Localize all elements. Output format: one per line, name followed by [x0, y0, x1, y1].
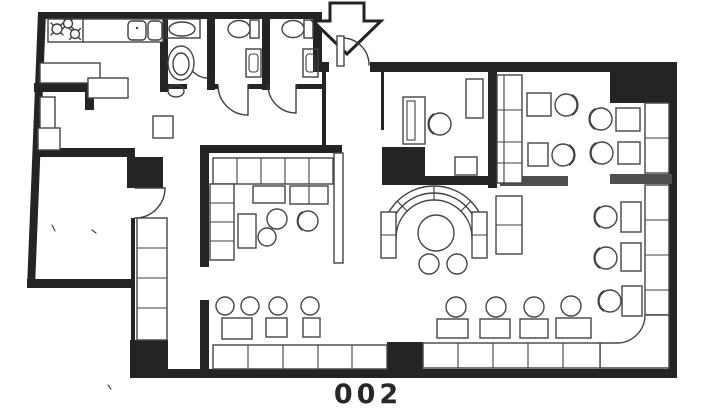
lounge-partition-right — [610, 174, 672, 184]
pillar-southwest — [130, 340, 168, 378]
table-icon — [253, 186, 285, 203]
table-icon — [622, 286, 642, 316]
corner-bench-seat-icon — [600, 315, 669, 368]
chair-icon — [216, 297, 234, 315]
office-cabinet — [466, 79, 483, 118]
table-icon — [520, 319, 548, 338]
top-wall-right — [370, 62, 677, 72]
bottom-bench-left-seat-icon — [213, 345, 387, 369]
table-icon — [266, 318, 287, 337]
table-icon — [527, 93, 551, 116]
office-left-wall — [381, 72, 384, 130]
chair-icon — [590, 142, 613, 164]
chair-icon — [486, 297, 506, 317]
table-icon — [621, 243, 641, 271]
chair-icon — [524, 297, 544, 317]
chair-icon — [269, 297, 287, 315]
entrance-step-wall — [322, 62, 329, 72]
table-icon — [556, 318, 591, 338]
wc-front-wall-2 — [207, 84, 218, 89]
table-icon — [238, 214, 256, 248]
round-table-icon — [418, 215, 454, 251]
wc2-door-swing-icon — [218, 85, 248, 115]
water-heater — [153, 116, 173, 138]
table-icon — [618, 142, 640, 164]
service-shelf — [496, 196, 522, 254]
chair-icon — [241, 297, 259, 315]
wc3-fixtures — [282, 20, 318, 77]
entrance-arrow-icon — [313, 3, 381, 54]
wc3-door-swing-icon — [268, 85, 296, 113]
low-partition — [334, 153, 343, 263]
right-bench-seat-icon — [645, 185, 669, 315]
washbasin-icon — [246, 49, 261, 77]
storage-bottom-wall — [27, 279, 135, 288]
bottom-bench-right-seat-icon — [423, 343, 600, 368]
chair-icon — [561, 296, 581, 316]
entrance-door-swing-icon — [337, 36, 369, 66]
nook-bench-seat-icon — [137, 218, 167, 340]
kitchen-box — [38, 128, 60, 150]
nook-wall — [131, 218, 135, 340]
chair-icon — [594, 247, 617, 269]
dining-left-wall-lower — [200, 300, 209, 377]
office-stool-chair-icon — [428, 113, 451, 135]
lobby-right-wall — [488, 62, 497, 188]
wc-divider-wall-2 — [262, 12, 270, 90]
toilet-icon — [228, 20, 259, 38]
table-icon — [437, 319, 468, 338]
chair-icon — [594, 206, 617, 228]
wc2-fixtures — [228, 20, 261, 77]
chair-icon — [589, 108, 612, 130]
chair-icon — [552, 144, 575, 166]
closet-block — [127, 157, 163, 188]
kitchen-shelf — [40, 97, 55, 130]
chair-icon — [258, 228, 276, 246]
chair-icon — [267, 209, 287, 229]
top-wall-left — [38, 12, 322, 19]
kitchen-side-table — [88, 78, 128, 98]
dining-top-wall — [200, 145, 342, 153]
office-bottom-wall — [418, 176, 495, 185]
table-icon — [222, 318, 252, 339]
storage-door-swing-icon — [135, 188, 165, 218]
chair-icon — [598, 290, 621, 312]
plan-number-label: 002 — [322, 379, 414, 410]
office-box — [455, 157, 477, 175]
pillar-south — [387, 342, 423, 378]
washbasin-icon — [169, 22, 195, 36]
lobby-left-wall — [322, 72, 326, 148]
table-icon — [303, 318, 320, 337]
chair-icon — [555, 94, 578, 116]
double-table-icon — [290, 186, 328, 204]
lounge-left-bench-seat-icon — [497, 75, 522, 183]
toilet-icon — [282, 20, 313, 38]
floor-plan-drawing — [0, 0, 712, 420]
office-desk — [403, 97, 425, 144]
chair-icon — [419, 254, 439, 274]
lounge-right-bench-seat-icon — [645, 103, 669, 173]
wc-front-wall-3 — [248, 84, 268, 89]
chair-icon — [446, 297, 466, 317]
floor-plan-page: 002 — [0, 0, 712, 420]
dining-left-wall-upper — [200, 145, 209, 267]
toilet-icon — [168, 46, 194, 80]
wc-front-wall-4 — [296, 84, 322, 89]
scan-marks — [52, 225, 111, 389]
chair-icon — [447, 254, 467, 274]
utility-block — [610, 72, 677, 103]
table-icon — [621, 202, 641, 232]
table-icon — [528, 143, 548, 166]
chair-icon — [297, 211, 318, 231]
table-icon — [616, 108, 640, 131]
chair-icon — [301, 297, 319, 315]
table-icon — [480, 319, 510, 338]
